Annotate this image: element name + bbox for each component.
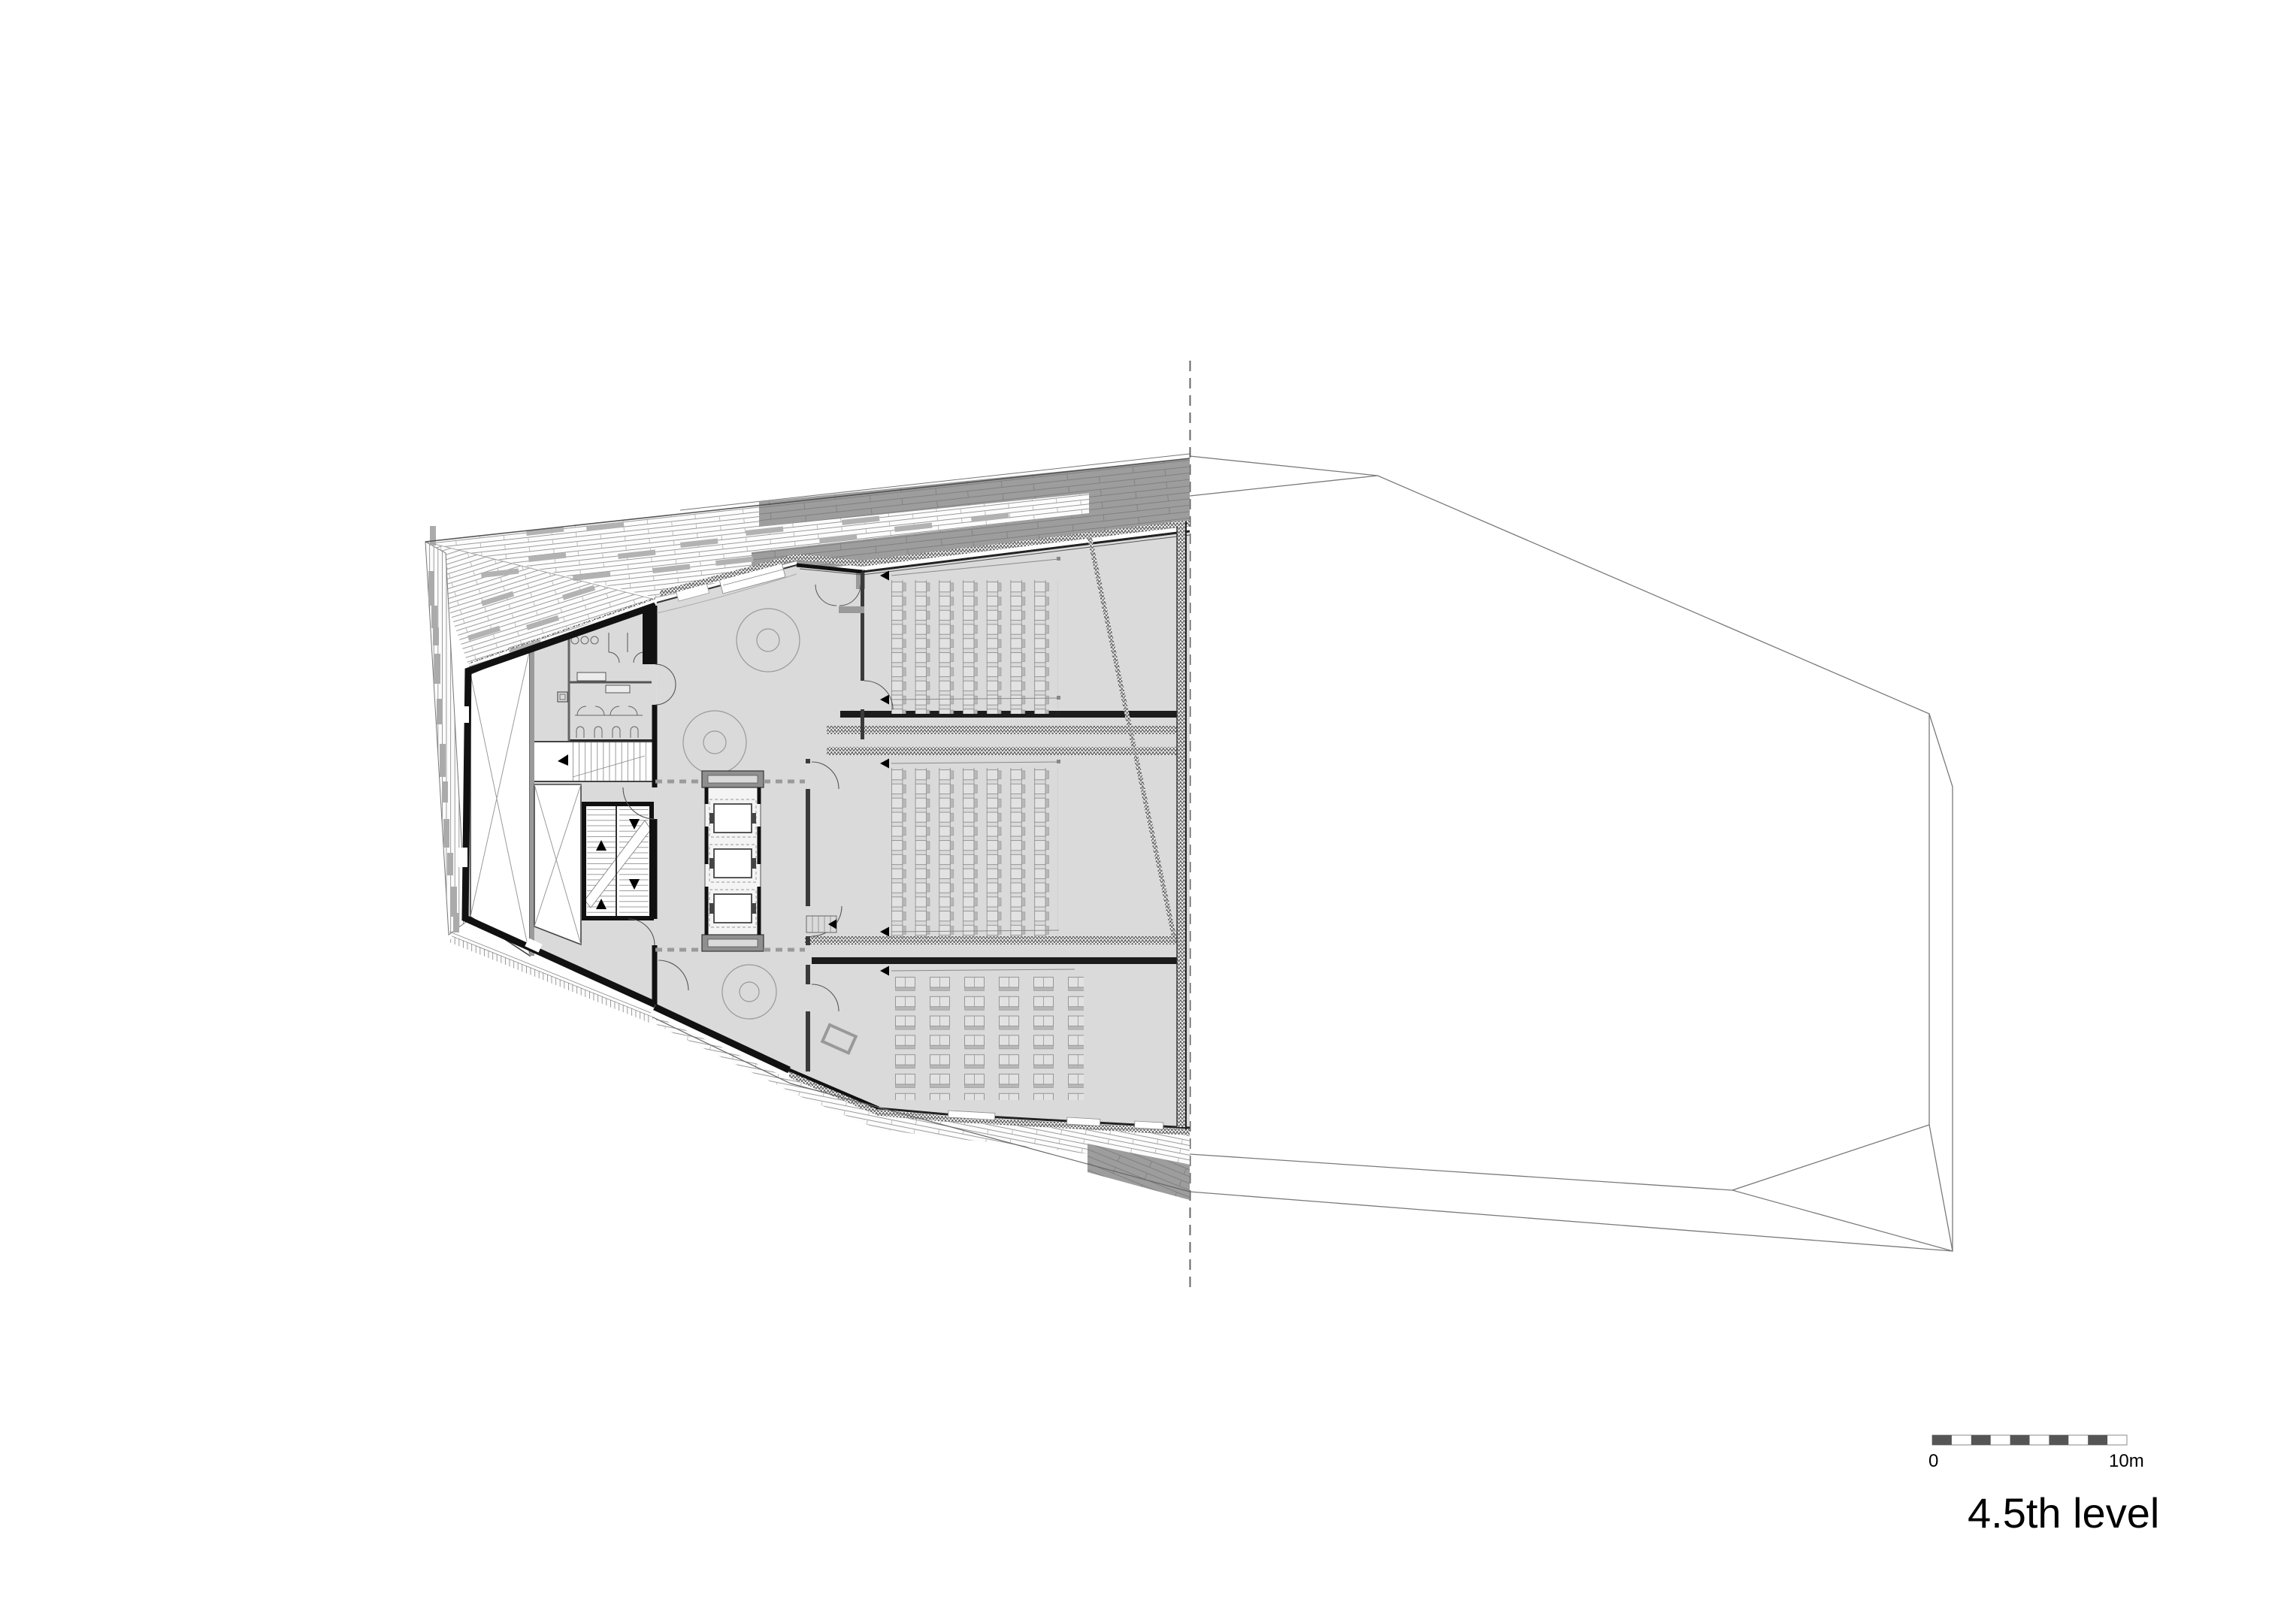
svg-text:0: 0 [1928, 1451, 1938, 1471]
svg-text:10m: 10m [2109, 1451, 2144, 1471]
svg-text:4.5th level: 4.5th level [1968, 1489, 2159, 1537]
